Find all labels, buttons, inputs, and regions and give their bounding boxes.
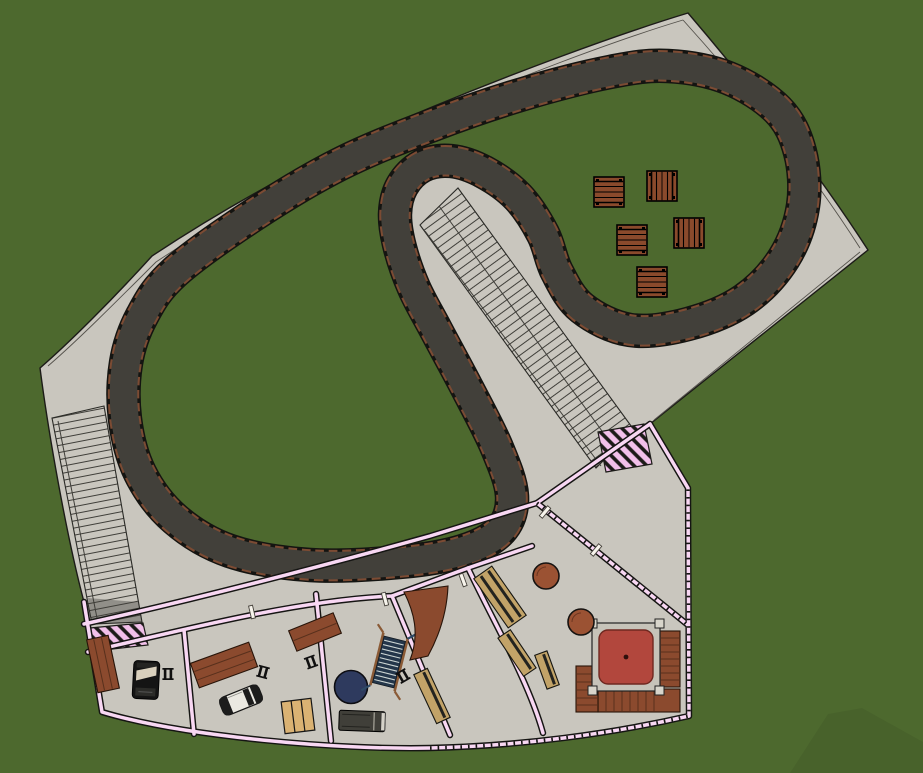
table-foot: [662, 269, 665, 272]
table-foot: [676, 220, 679, 223]
corner-post: [655, 619, 664, 628]
deck-right: [660, 631, 680, 687]
corner-post: [655, 686, 664, 695]
deck-bottom: [598, 689, 680, 712]
picnic-table: [674, 218, 704, 248]
picnic-table: [647, 171, 677, 201]
table-foot: [619, 179, 622, 182]
table-foot: [596, 179, 599, 182]
pad-center-dot: [624, 655, 629, 660]
table-foot: [619, 250, 622, 253]
table-foot: [619, 202, 622, 205]
table-foot: [642, 250, 645, 253]
table-foot: [699, 243, 702, 246]
table-foot: [642, 227, 645, 230]
table-foot: [639, 292, 642, 295]
corner-post: [588, 686, 597, 695]
site-plan-canvas: [0, 0, 923, 773]
table-foot: [676, 243, 679, 246]
table-foot: [672, 173, 675, 176]
table-foot: [619, 227, 622, 230]
picnic-table: [637, 267, 667, 297]
table-foot: [699, 220, 702, 223]
tan-plank-table: [281, 698, 315, 733]
bay-5: [576, 619, 680, 712]
picnic-table: [617, 225, 647, 255]
picnic-table: [594, 177, 624, 207]
table-foot: [672, 196, 675, 199]
red-platform: [588, 619, 664, 695]
table-foot: [596, 202, 599, 205]
table-foot: [662, 292, 665, 295]
blue-circle-pad: [335, 671, 368, 704]
table-foot: [639, 269, 642, 272]
table-foot: [649, 196, 652, 199]
gray-van: [339, 710, 386, 732]
site-plan: [0, 0, 923, 773]
table-foot: [649, 173, 652, 176]
black-van: [132, 660, 160, 699]
